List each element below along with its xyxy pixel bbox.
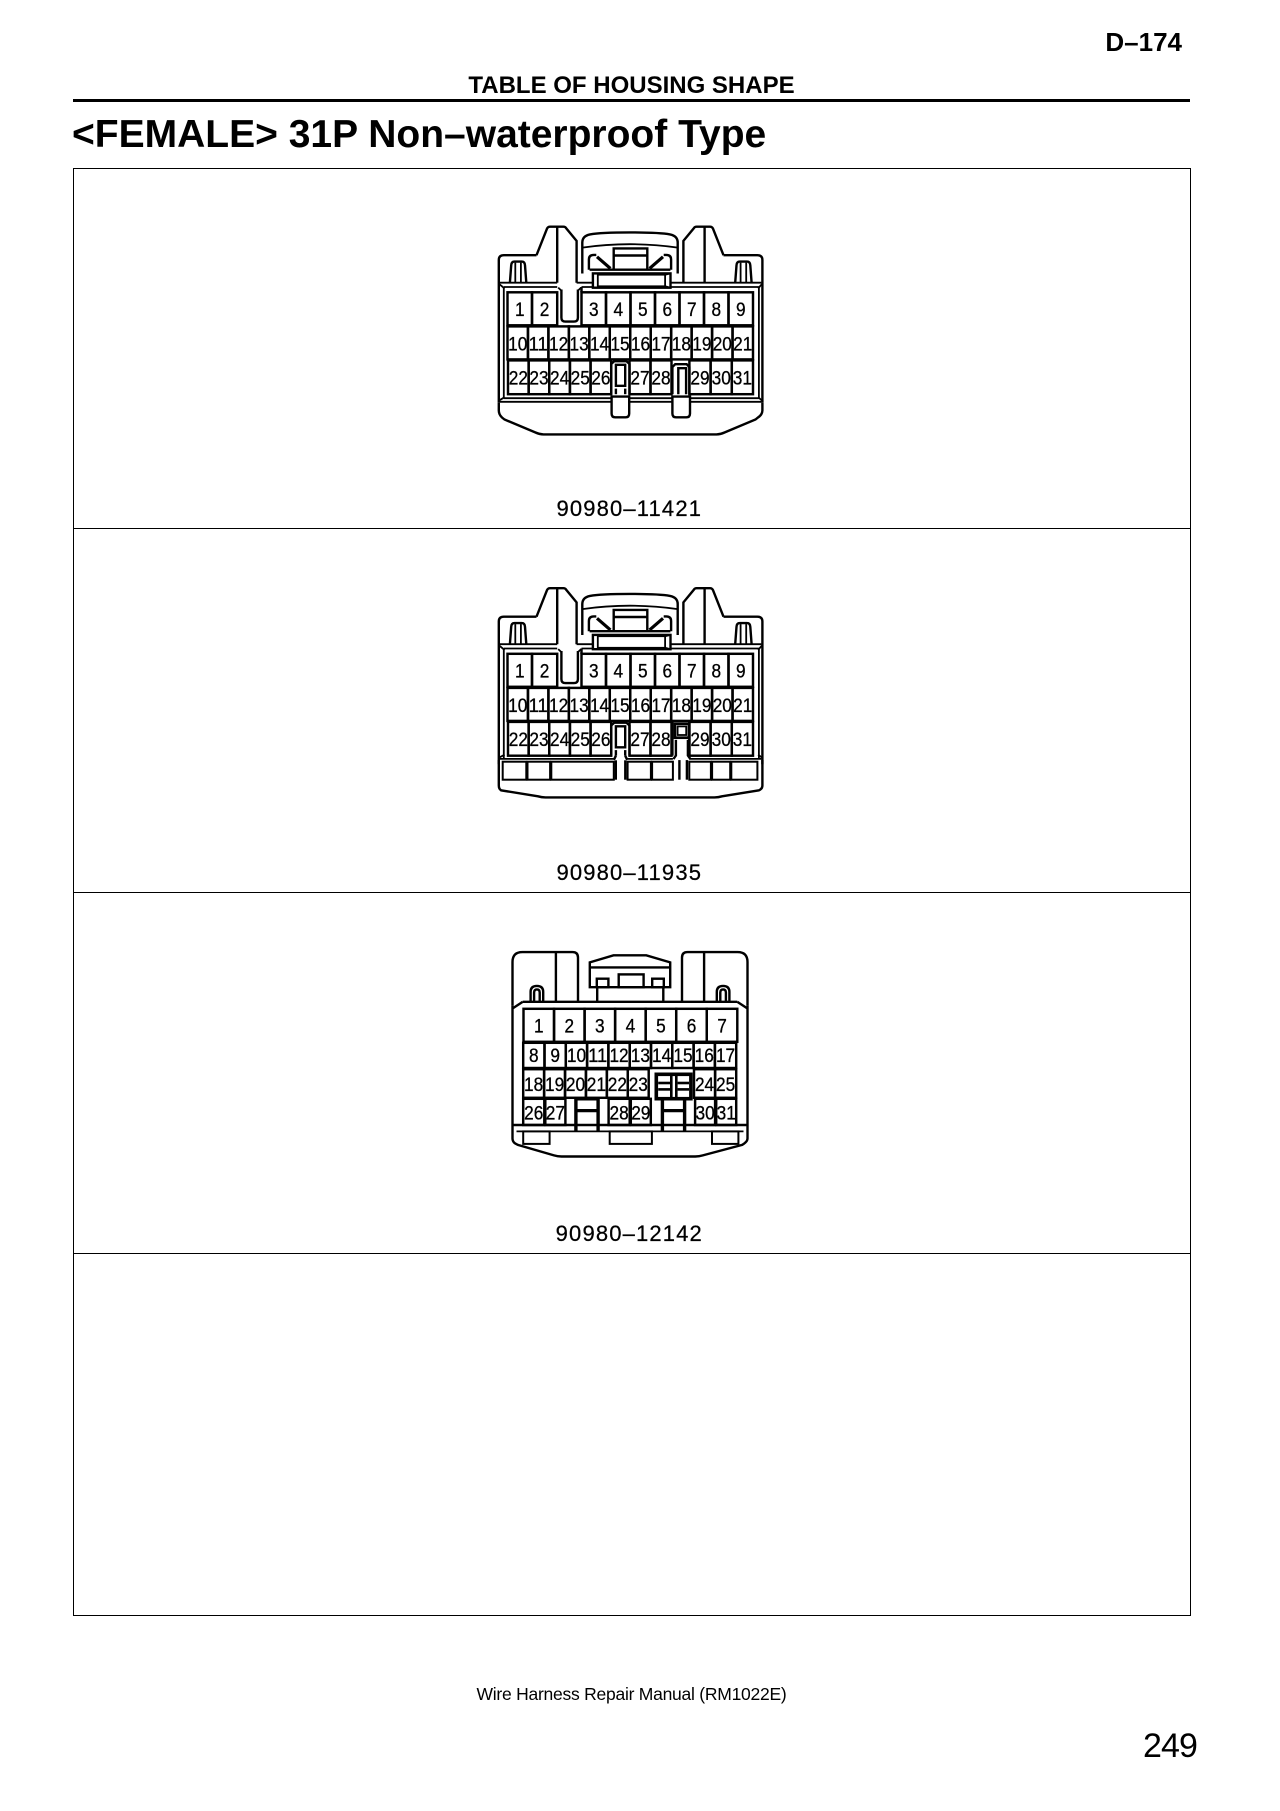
svg-text:3: 3 — [589, 662, 599, 683]
svg-text:25: 25 — [716, 1075, 735, 1096]
svg-text:2: 2 — [540, 300, 550, 321]
svg-text:5: 5 — [638, 662, 648, 683]
svg-text:8: 8 — [529, 1046, 539, 1067]
svg-text:21: 21 — [587, 1075, 606, 1096]
svg-text:4: 4 — [613, 662, 623, 683]
svg-text:27: 27 — [630, 730, 649, 751]
svg-text:29: 29 — [690, 730, 709, 751]
svg-text:4: 4 — [613, 300, 623, 321]
svg-text:28: 28 — [651, 730, 670, 751]
svg-text:22: 22 — [509, 730, 528, 751]
svg-text:7: 7 — [687, 662, 697, 683]
svg-text:3: 3 — [595, 1017, 605, 1038]
svg-text:14: 14 — [590, 334, 610, 355]
svg-text:13: 13 — [570, 334, 589, 355]
svg-text:20: 20 — [713, 334, 732, 355]
svg-text:11: 11 — [529, 334, 548, 355]
svg-text:22: 22 — [509, 368, 528, 389]
svg-text:14: 14 — [652, 1046, 672, 1067]
svg-text:29: 29 — [631, 1103, 650, 1124]
svg-text:17: 17 — [716, 1046, 735, 1067]
svg-text:19: 19 — [692, 696, 711, 717]
svg-text:28: 28 — [651, 368, 670, 389]
svg-text:1: 1 — [515, 662, 525, 683]
svg-text:24: 24 — [550, 730, 570, 751]
svg-text:11: 11 — [588, 1046, 607, 1067]
svg-text:16: 16 — [631, 334, 650, 355]
svg-text:10: 10 — [567, 1046, 586, 1067]
svg-text:9: 9 — [736, 300, 746, 321]
svg-text:15: 15 — [610, 334, 629, 355]
svg-text:8: 8 — [711, 662, 721, 683]
svg-text:19: 19 — [692, 334, 711, 355]
svg-text:16: 16 — [631, 696, 650, 717]
svg-text:27: 27 — [546, 1103, 565, 1124]
svg-text:30: 30 — [712, 730, 731, 751]
svg-text:26: 26 — [524, 1103, 543, 1124]
svg-text:31: 31 — [733, 368, 752, 389]
svg-text:19: 19 — [545, 1075, 564, 1096]
svg-text:28: 28 — [610, 1103, 629, 1124]
svg-text:10: 10 — [508, 334, 527, 355]
svg-text:27: 27 — [630, 368, 649, 389]
svg-text:30: 30 — [712, 368, 731, 389]
svg-text:18: 18 — [672, 334, 691, 355]
svg-text:6: 6 — [687, 1017, 697, 1038]
svg-text:25: 25 — [571, 730, 590, 751]
svg-text:17: 17 — [651, 334, 670, 355]
svg-text:18: 18 — [524, 1075, 543, 1096]
svg-text:7: 7 — [717, 1017, 727, 1038]
svg-text:21: 21 — [733, 696, 752, 717]
svg-text:3: 3 — [589, 300, 599, 321]
svg-text:15: 15 — [673, 1046, 692, 1067]
svg-text:1: 1 — [534, 1017, 544, 1038]
svg-text:11: 11 — [529, 696, 548, 717]
svg-text:26: 26 — [591, 368, 610, 389]
svg-text:20: 20 — [566, 1075, 585, 1096]
svg-text:6: 6 — [662, 300, 672, 321]
svg-text:17: 17 — [651, 696, 670, 717]
svg-text:24: 24 — [695, 1075, 715, 1096]
svg-text:4: 4 — [626, 1017, 636, 1038]
svg-text:13: 13 — [570, 696, 589, 717]
svg-text:31: 31 — [717, 1103, 736, 1124]
svg-text:15: 15 — [610, 696, 629, 717]
svg-text:30: 30 — [696, 1103, 715, 1124]
svg-text:7: 7 — [687, 300, 697, 321]
svg-text:9: 9 — [550, 1046, 560, 1067]
svg-text:23: 23 — [529, 368, 548, 389]
svg-text:10: 10 — [508, 696, 527, 717]
svg-text:8: 8 — [711, 300, 721, 321]
svg-text:29: 29 — [690, 368, 709, 389]
svg-text:23: 23 — [529, 730, 548, 751]
svg-text:13: 13 — [631, 1046, 650, 1067]
svg-text:24: 24 — [550, 368, 570, 389]
svg-text:6: 6 — [662, 662, 672, 683]
svg-text:18: 18 — [672, 696, 691, 717]
svg-text:26: 26 — [591, 730, 610, 751]
svg-text:25: 25 — [571, 368, 590, 389]
svg-text:2: 2 — [565, 1017, 575, 1038]
svg-text:31: 31 — [733, 730, 752, 751]
svg-text:5: 5 — [638, 300, 648, 321]
svg-text:20: 20 — [713, 696, 732, 717]
svg-text:12: 12 — [609, 1046, 628, 1067]
svg-text:2: 2 — [540, 662, 550, 683]
svg-text:23: 23 — [629, 1075, 648, 1096]
svg-text:9: 9 — [736, 662, 746, 683]
svg-text:22: 22 — [608, 1075, 627, 1096]
svg-text:14: 14 — [590, 696, 610, 717]
svg-text:16: 16 — [695, 1046, 714, 1067]
svg-text:21: 21 — [733, 334, 752, 355]
svg-text:12: 12 — [549, 334, 568, 355]
svg-text:5: 5 — [656, 1017, 666, 1038]
svg-text:1: 1 — [515, 300, 525, 321]
svg-text:12: 12 — [549, 696, 568, 717]
